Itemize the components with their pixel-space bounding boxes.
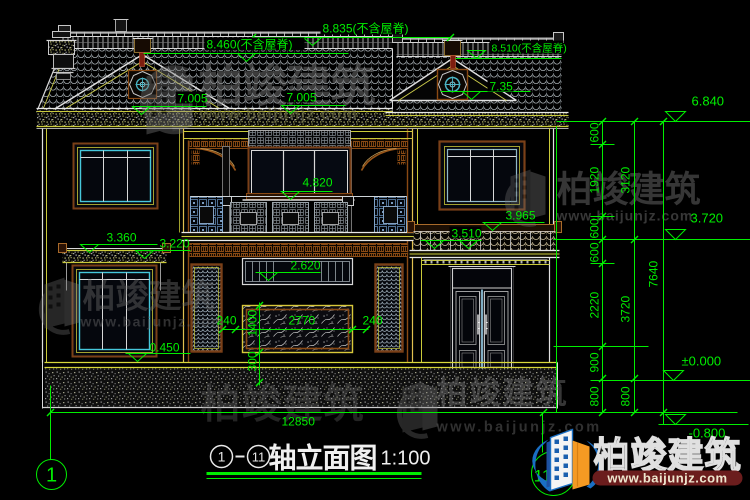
svg-text:3.220: 3.220 <box>160 237 190 251</box>
svg-text:www.baijunjz.com: www.baijunjz.com <box>436 420 602 436</box>
svg-text:3.510: 3.510 <box>452 227 482 241</box>
svg-text:7.005: 7.005 <box>178 92 208 106</box>
svg-text:800: 800 <box>588 386 602 406</box>
svg-text:3.720: 3.720 <box>691 211 724 226</box>
svg-text:轴立面图: 轴立面图 <box>269 442 377 474</box>
svg-text:8.835(不含屋脊): 8.835(不含屋脊) <box>323 21 409 36</box>
svg-text:240: 240 <box>363 314 383 328</box>
svg-text:11: 11 <box>252 450 266 465</box>
svg-text:2220: 2220 <box>588 291 602 318</box>
svg-text:0.450: 0.450 <box>150 341 180 355</box>
svg-text:600: 600 <box>588 122 602 142</box>
svg-text:300: 300 <box>246 351 260 371</box>
svg-text:1:100: 1:100 <box>381 448 431 470</box>
svg-text:1920: 1920 <box>588 166 602 193</box>
svg-text:www.baijunjz.com: www.baijunjz.com <box>80 314 226 330</box>
svg-text:8.510(不含屋脊): 8.510(不含屋脊) <box>492 42 567 55</box>
svg-text:柏竣建筑: 柏竣建筑 <box>594 435 742 476</box>
svg-text:800: 800 <box>619 386 633 406</box>
svg-text:www.baijunjz.com: www.baijunjz.com <box>556 208 694 224</box>
svg-text:1: 1 <box>46 465 57 487</box>
svg-text:2770: 2770 <box>289 314 316 328</box>
svg-text:1400: 1400 <box>246 309 260 336</box>
svg-text:900: 900 <box>588 352 602 372</box>
svg-text:6.840: 6.840 <box>692 94 725 109</box>
svg-text:柏竣建筑: 柏竣建筑 <box>83 278 215 315</box>
svg-text:12850: 12850 <box>282 415 316 429</box>
svg-text:7.35: 7.35 <box>490 80 514 94</box>
svg-text:600: 600 <box>588 242 602 262</box>
svg-text:www.baijunjz.com: www.baijunjz.com <box>606 471 727 486</box>
svg-text:240: 240 <box>217 314 237 328</box>
svg-text:±0.000: ±0.000 <box>682 354 722 369</box>
svg-text:3.360: 3.360 <box>107 231 137 245</box>
svg-text:4.820: 4.820 <box>303 176 333 190</box>
svg-text:2.620: 2.620 <box>291 259 321 273</box>
svg-text:www.baijunjz.com: www.baijunjz.com <box>199 106 358 124</box>
svg-text:8.460(不含屋脊): 8.460(不含屋脊) <box>207 37 293 52</box>
svg-text:1: 1 <box>218 449 226 465</box>
svg-text:柏竣建筑: 柏竣建筑 <box>437 376 569 411</box>
svg-text:3.965: 3.965 <box>506 209 536 223</box>
svg-text:7.005: 7.005 <box>287 91 317 105</box>
svg-text:600: 600 <box>588 218 602 238</box>
svg-text:3720: 3720 <box>619 295 633 322</box>
svg-text:3120: 3120 <box>619 166 633 193</box>
svg-text:7640: 7640 <box>647 260 661 287</box>
